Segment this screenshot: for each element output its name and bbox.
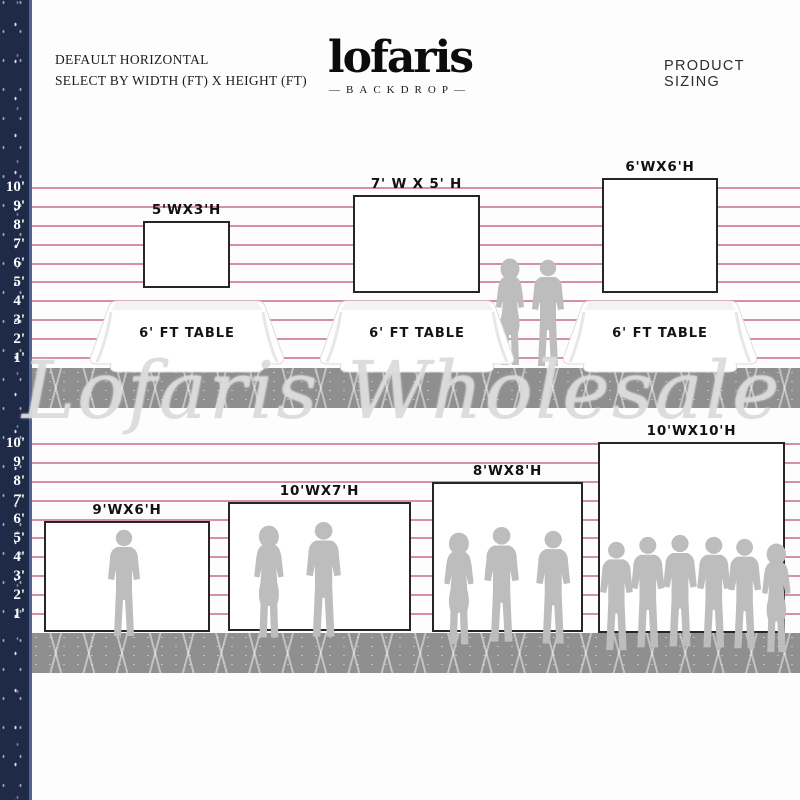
ruler-foot-label: 6' bbox=[0, 254, 29, 272]
ruler-foot-label: 8' bbox=[0, 472, 29, 490]
brand-logo-wordmark: lofaris bbox=[290, 36, 510, 80]
page-title: PRODUCT SIZING bbox=[664, 58, 800, 90]
table-label: 6' FT TABLE bbox=[87, 326, 287, 341]
header-left-line1: DEFAULT HORIZONTAL bbox=[55, 50, 307, 71]
ruler-foot-label: 3' bbox=[0, 311, 29, 329]
backdrop-label-8x8: 8'WX8'H bbox=[432, 463, 583, 479]
ruler-foot-label: 2' bbox=[0, 586, 29, 604]
ruler-foot-label: 7' bbox=[0, 491, 29, 509]
header-left-text: DEFAULT HORIZONTAL SELECT BY WIDTH (FT) … bbox=[55, 50, 307, 92]
table-3: 6' FT TABLE bbox=[560, 298, 760, 378]
ruler-foot-label: 10' bbox=[0, 434, 29, 452]
ruler-foot-label: 4' bbox=[0, 292, 29, 310]
ruler-bottom: 10'9'8'7'6'5'4'3'2'1' bbox=[0, 434, 29, 623]
table-label: 6' FT TABLE bbox=[317, 326, 517, 341]
ruler-foot-label: 8' bbox=[0, 216, 29, 234]
ruler-foot-label: 5' bbox=[0, 273, 29, 291]
brand-logo: lofaris —BACKDROP— bbox=[290, 36, 510, 96]
table-label: 6' FT TABLE bbox=[560, 326, 760, 341]
man-silhouette-9x6 bbox=[102, 526, 146, 638]
backdrop-label-7x5: 7' W X 5' H bbox=[353, 176, 480, 192]
ruler-foot-label: 1' bbox=[0, 605, 29, 623]
ruler-foot-label: 4' bbox=[0, 548, 29, 566]
ruler-foot-label: 3' bbox=[0, 567, 29, 585]
ruler-foot-label: 7' bbox=[0, 235, 29, 253]
ruler-foot-label: 2' bbox=[0, 330, 29, 348]
backdrop-label-6x6: 6'WX6'H bbox=[602, 159, 718, 175]
ruler-foot-label: 5' bbox=[0, 529, 29, 547]
table-1: 6' FT TABLE bbox=[87, 298, 287, 378]
backdrop-6x6 bbox=[602, 178, 718, 293]
product-sizing-diagram: 10'9'8'7'6'5'4'3'2'1' 10'9'8'7'6'5'4'3'2… bbox=[0, 0, 800, 800]
backdrop-label-5x3: 5'WX3'H bbox=[143, 202, 230, 218]
ruler-foot-label: 1' bbox=[0, 349, 29, 367]
brand-logo-subtitle: —BACKDROP— bbox=[290, 84, 510, 96]
group-silhouette-8x8 bbox=[440, 521, 576, 647]
backdrop-label-10x7: 10'WX7'H bbox=[228, 483, 411, 499]
group-silhouette-10x10 bbox=[596, 532, 794, 656]
backdrop-7x5 bbox=[353, 195, 480, 293]
ruler-foot-label: 9' bbox=[0, 453, 29, 471]
header-left-line2: SELECT BY WIDTH (FT) X HEIGHT (FT) bbox=[55, 71, 307, 92]
table-2: 6' FT TABLE bbox=[317, 298, 517, 378]
backdrop-label-10x10: 10'WX10'H bbox=[598, 423, 785, 439]
backdrop-5x3 bbox=[143, 221, 230, 288]
couple-silhouette-10x7 bbox=[248, 518, 360, 642]
ruler-foot-label: 10' bbox=[0, 178, 29, 196]
ruler-foot-label: 9' bbox=[0, 197, 29, 215]
backdrop-label-9x6: 9'WX6'H bbox=[44, 502, 210, 518]
ruler-strip bbox=[0, 0, 32, 800]
ruler-top: 10'9'8'7'6'5'4'3'2'1' bbox=[0, 178, 29, 367]
ruler-foot-label: 6' bbox=[0, 510, 29, 528]
